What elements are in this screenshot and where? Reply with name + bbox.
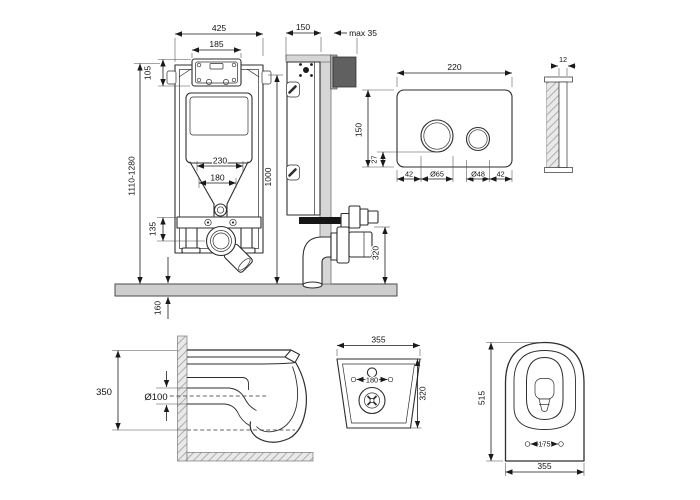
bowl-back-outline [337,359,420,428]
dim-label-small-button: Ø48 [471,170,485,179]
frame-top-cap [286,55,331,62]
floor-hatch [187,453,313,462]
dim-label-plate-height: 150 [354,123,364,137]
drain-elbow [207,227,236,256]
dim-label-outlet-drop: 135 [148,222,158,236]
dim-label-button-offset: 27 [370,155,379,163]
dim-label-right-margin: 42 [497,170,505,179]
clip-icon [287,165,300,180]
plate-profile [559,82,567,168]
plate-bottom-flange [545,168,573,173]
dim-label-bolt-spacing: 180 [366,376,378,385]
drawing-canvas: 425 185 105 1110-1280 230 180 135 160 [0,0,700,500]
dim-label-plate-width: 220 [447,62,461,72]
outlet-pipe [349,232,372,257]
dim-label-bowl-length: 515 [477,391,487,405]
dim-label-frame-width: 425 [212,23,226,33]
floor-slab [115,284,397,296]
dim-label-outlet-inner: 180 [210,173,224,183]
inlet-nut [341,214,349,228]
drain-well [535,379,554,400]
leg-foot [182,248,200,253]
dim-label-back-height: 320 [418,386,428,400]
wall-bracket-block [333,57,356,87]
dim-label-access-height: 105 [143,66,153,80]
dim-label-frame-depth: 150 [296,22,310,32]
dim-label-bowl-width: 355 [537,461,551,471]
drain-cross-center [370,399,374,403]
dim-label-seat-bolt-spacing: 175 [538,440,550,449]
wall-hatch [547,77,560,172]
frame-leg [186,228,197,249]
dim-label-left-margin: 42 [405,170,413,179]
dim-label-access-width: 185 [209,39,223,49]
dim-label-outlet-outer: 230 [213,156,227,166]
wall-hatch [178,336,188,461]
dim-label-frame-height: 1000 [263,167,273,186]
water-inlet-pipe [299,217,342,224]
dim-label-outlet-diameter: Ø100 [144,392,167,403]
dim-label-back-width: 355 [371,335,385,345]
technical-drawing-sheet: 425 185 105 1110-1280 230 180 135 160 [0,0,700,500]
dim-label-wall-allowance: max 35 [349,28,377,38]
dim-label-below-floor: 160 [153,301,163,315]
dim-label-plate-thickness: 12 [559,55,567,64]
clip-icon [287,82,300,97]
dim-label-bowl-height: 350 [96,387,112,398]
dim-label-large-button: Ø65 [430,170,444,179]
frame-leg [241,228,252,249]
flush-pipe-fitting [215,204,227,216]
bracket-bolt-dot [207,221,209,223]
flush-plate [397,90,512,167]
dim-label-install-height: 1110-1280 [127,156,137,196]
dim-label-outlet-height: 320 [371,246,381,260]
plate-top-flange [545,77,573,82]
outlet-flange [337,227,349,263]
bracket-bolt-dot [232,221,234,223]
side-tab [262,71,271,84]
side-tab [167,71,176,84]
